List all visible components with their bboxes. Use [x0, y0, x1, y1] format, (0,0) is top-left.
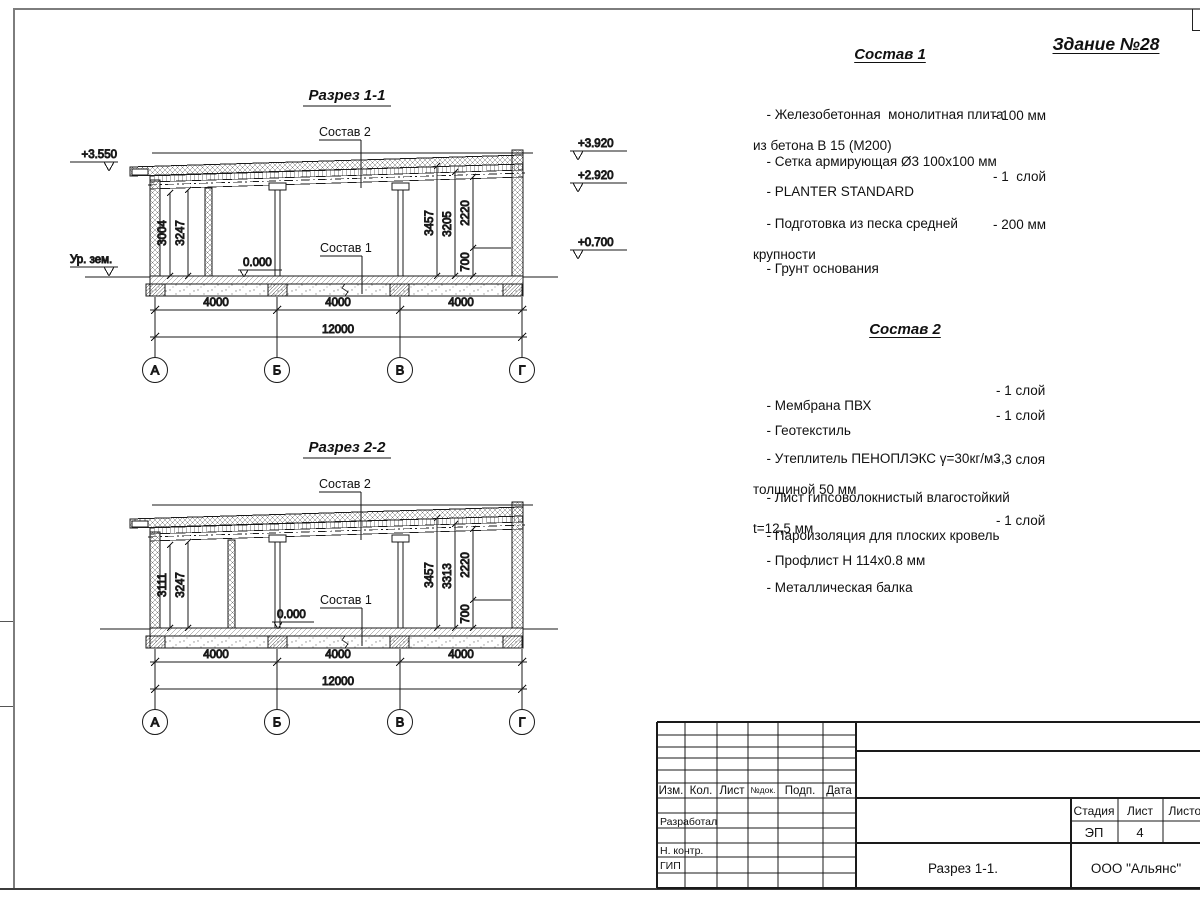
item-value: - 1 слой [996, 383, 1045, 398]
corner-stamp-box [1192, 9, 1200, 31]
sostav1-heading: Состав 1 [840, 46, 940, 63]
bottom-dimensions: 4000 4000 4000 12000 [150, 649, 527, 709]
company-name: ООО "Альянс" [1091, 861, 1181, 876]
zero-level-value: 0.000 [243, 257, 272, 269]
col-header: Подп. [785, 785, 816, 797]
total-dim: 12000 [322, 676, 354, 688]
floor-slab [150, 276, 523, 284]
row-label: Н. контр. [660, 845, 703, 857]
foundation-pad [503, 636, 522, 648]
section-1-1-drawing: Разрез 1-1 Состав 2 [55, 80, 665, 392]
interior-dimensions-right: 3457 3205 2220 700 [424, 163, 511, 279]
item-text: - Металлическая балка [767, 580, 913, 595]
zero-level-value: 0.000 [277, 609, 306, 621]
floor-slab [150, 628, 523, 636]
foundation-pad [390, 636, 409, 648]
interior-dimensions-left: 3004 3247 [157, 187, 191, 279]
total-dim: 12000 [322, 324, 354, 336]
col-header: Изм. [659, 785, 684, 797]
sheet-frame-left [13, 8, 15, 889]
col-header: Кол. [690, 785, 713, 797]
dim-value: 3205 [442, 211, 454, 237]
axis-bubbles: А Б В Г [143, 710, 535, 735]
foundation-pad [268, 284, 287, 296]
interior-dimensions-right: 3457 3313 2220 700 [424, 515, 511, 631]
dim-value: 3313 [442, 563, 454, 589]
row-label: ГИП [660, 860, 681, 872]
stage-label: Стадия [1074, 804, 1115, 818]
span-dim: 4000 [203, 649, 229, 661]
col-header: Лист [720, 785, 746, 797]
foundation-pad [268, 636, 287, 648]
dim-value: 3111 [157, 573, 169, 597]
span-dim: 4000 [325, 297, 351, 309]
dim-value: 3004 [157, 220, 169, 246]
section-2-2-drawing: Разрез 2-2 Состав 2 [55, 432, 665, 744]
axis-bubbles: А Б В Г [143, 358, 535, 383]
dim-value: 3247 [175, 572, 187, 598]
sheet-label: Лист [1127, 804, 1154, 818]
section-title: Разрез 2-2 [308, 439, 386, 456]
building-title: Здание №28 [1040, 34, 1172, 55]
sostav1-callout-label: Состав 1 [320, 593, 372, 607]
sheet-frame-top [13, 8, 1200, 10]
dim-value: 2220 [460, 200, 472, 226]
dim-value: 3457 [424, 562, 436, 588]
roof-assembly [130, 153, 533, 189]
sostav2-callout-label: Состав 2 [319, 477, 371, 491]
floor-and-foundation [100, 628, 558, 648]
column-v [392, 535, 409, 628]
sand-layer [150, 284, 523, 296]
roof-edge-box [132, 521, 148, 527]
axis-label: А [151, 363, 160, 378]
drawing-sheet: Здание №28 Разрез 1 [0, 0, 1200, 900]
dim-value: 700 [460, 604, 472, 623]
axis-label: Г [518, 363, 525, 378]
dim-value: 700 [460, 252, 472, 271]
item-value: - 200 мм [993, 217, 1046, 232]
foundation-pad [503, 284, 522, 296]
sostav1-callout-label: Состав 1 [320, 241, 372, 255]
sostav1-list: - Железобетонная монолитная плита из бет… [744, 92, 1084, 272]
floor-and-foundation [85, 276, 558, 296]
item-value: - 1 слой [996, 513, 1045, 528]
col-header: №док. [751, 785, 776, 795]
foundation-pad [146, 284, 165, 296]
item-value: - 1 слой [996, 408, 1045, 423]
span-dim: 4000 [203, 297, 229, 309]
column-v [392, 183, 409, 276]
interior-dimensions-left: 3111 3247 [157, 539, 191, 631]
sostav2-leader: Состав 2 [319, 125, 371, 188]
fold-mark-lower [0, 706, 13, 707]
drawing-name: Разрез 1-1. [928, 861, 998, 876]
span-dim: 4000 [448, 649, 474, 661]
span-dim: 4000 [325, 649, 351, 661]
foundation-pad [146, 636, 165, 648]
section-title: Разрез 1-1 [308, 87, 385, 104]
list-item: - Металлическая балка [744, 565, 913, 610]
item-text: - Железобетонная монолитная плита [767, 107, 1004, 122]
ground-level-label: Ур. зем. [70, 254, 112, 266]
axis-label: Г [518, 715, 525, 730]
sostav2-callout-label: Состав 2 [319, 125, 371, 139]
axis-label: А [151, 715, 160, 730]
axis-label: В [396, 715, 405, 730]
section-1-1-title: Разрез 1-1 [303, 87, 391, 106]
partition-wall [228, 540, 235, 628]
partition-wall [205, 188, 212, 276]
fold-mark-upper [0, 621, 13, 622]
sostav2-list: - Мембрана ПВХ - 1 слой - Геотекстиль - … [744, 383, 1084, 593]
dim-value: 3457 [424, 210, 436, 236]
section-2-2-title: Разрез 2-2 [303, 439, 391, 458]
axis-label: Б [273, 363, 282, 378]
item-value: - 1 слой [993, 169, 1046, 184]
dim-value: 2220 [460, 552, 472, 578]
item-text: - Грунт основания [767, 261, 879, 276]
col-header: Дата [826, 785, 852, 797]
elevation-value: +0.700 [578, 237, 614, 249]
sostav2-heading: Состав 2 [855, 321, 955, 338]
stage-value: ЭП [1085, 825, 1104, 840]
item-text: - Сетка армирующая Ø3 100х100 мм [767, 154, 997, 169]
dim-value: 3247 [175, 220, 187, 246]
sostav2-leader: Состав 2 [319, 477, 371, 540]
item-text: - Утеплитель ПЕНОПЛЭКС γ=30кг/м3, [767, 451, 1005, 466]
title-block: Изм. Кол. Лист №док. Подп. Дата Разработ… [655, 718, 1200, 890]
bottom-dimensions: 4000 4000 4000 12000 [150, 297, 527, 357]
item-text: - Лист гипсоволокнистый влагостойкий [767, 490, 1010, 505]
elevation-value: +3.550 [82, 149, 118, 161]
zero-level-mark: 0.000 [272, 609, 314, 629]
sand-layer [150, 636, 523, 648]
list-item: - Грунт основания [744, 246, 879, 291]
axis-label: В [396, 363, 405, 378]
item-text: - Подготовка из песка средней [767, 216, 958, 231]
right-wall [512, 150, 523, 276]
row-label: Разработал [660, 816, 717, 828]
item-value: - 3 слоя [996, 452, 1045, 467]
elevation-value: +3.920 [578, 138, 614, 150]
right-wall [512, 502, 523, 628]
sheet-value: 4 [1136, 825, 1143, 840]
roof-edge-box [132, 169, 148, 175]
roof-assembly [130, 505, 533, 541]
elevation-value: +2.920 [578, 170, 614, 182]
sheets-label: Листов [1169, 804, 1200, 818]
axis-label: Б [273, 715, 282, 730]
span-dim: 4000 [448, 297, 474, 309]
foundation-pad [390, 284, 409, 296]
item-text: - PLANTER STANDARD [767, 184, 915, 199]
elevation-marks-right: +3.920 +2.920 +0.700 [570, 138, 627, 259]
elevation-marks-left: +3.550 Ур. зем. [70, 149, 118, 276]
item-value: - 100 мм [993, 108, 1046, 123]
